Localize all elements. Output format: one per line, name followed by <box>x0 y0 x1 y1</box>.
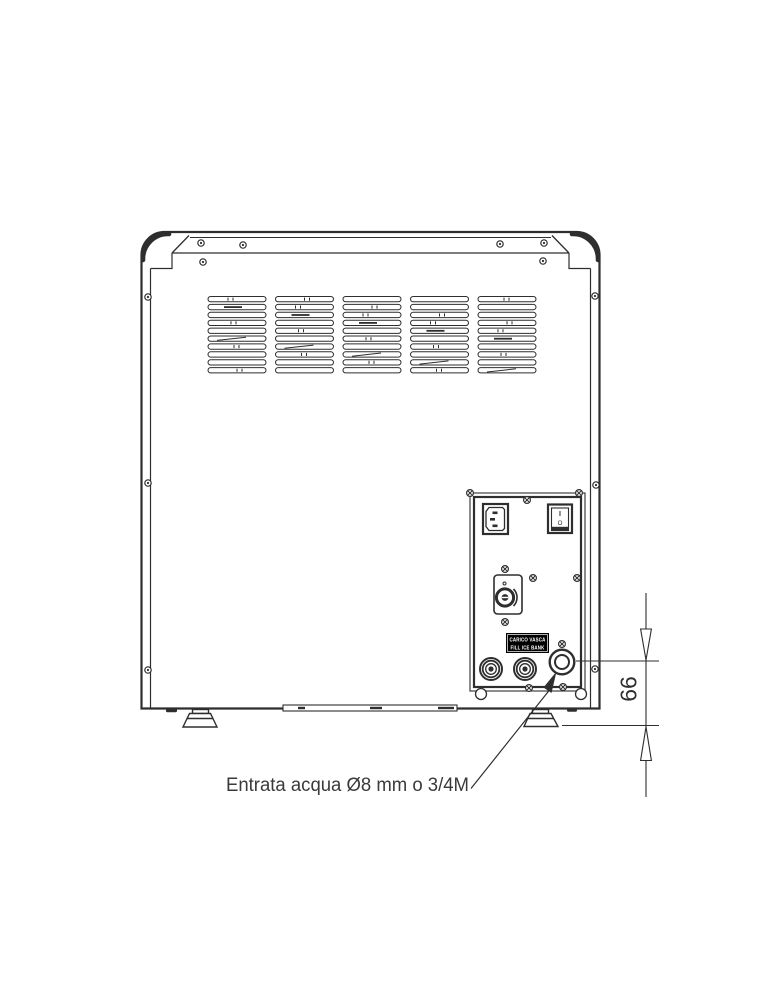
iec-pin <box>493 525 498 528</box>
hose-connector-right <box>514 658 536 680</box>
fill-label-line2: FILL ICE BANK <box>511 646 545 652</box>
iec-pin <box>493 512 498 515</box>
vent-mark <box>292 314 310 316</box>
vent-mark <box>494 338 512 340</box>
vent-mark <box>427 330 445 332</box>
panel-hole-left <box>476 689 487 700</box>
switch-off-mark: O <box>558 520 563 527</box>
switch-rocker-edge <box>552 527 569 531</box>
fill-label: CARICO VASCA FILL ICE BANK <box>506 633 549 653</box>
background <box>0 0 771 1000</box>
water-inlet-fitting <box>550 650 575 675</box>
bottom-nub-right <box>567 708 577 712</box>
screw-icon <box>542 260 544 262</box>
screw-icon <box>543 242 545 244</box>
screw-icon <box>594 668 596 670</box>
panel-hole-right <box>576 689 587 700</box>
vent-mark <box>224 306 242 308</box>
screw-icon <box>594 295 596 297</box>
screw-icon <box>200 242 202 244</box>
screw-icon <box>595 484 597 486</box>
screw-icon <box>202 261 204 263</box>
screw-icon <box>147 669 149 671</box>
iec-pin <box>490 518 495 521</box>
water-inlet-text: Entrata acqua Ø8 mm o 3/4M <box>226 775 469 796</box>
hose-connector-left <box>480 658 502 680</box>
screw-icon <box>147 296 149 298</box>
switch-on-mark: I <box>559 511 561 518</box>
fill-label-line1: CARICO VASCA <box>510 638 546 644</box>
dimension-value: 66 <box>616 676 642 702</box>
strip-mark <box>298 707 305 709</box>
screw-icon <box>499 243 501 245</box>
bottom-nub-left <box>166 708 177 712</box>
strip-mark <box>370 707 382 709</box>
screw-icon <box>242 244 244 246</box>
strip-mark <box>438 707 454 709</box>
foot-left-base <box>183 714 217 728</box>
diagram-canvas: I O CARICO VASCA FILL ICE BANK <box>0 0 771 1000</box>
machine-rear-diagram: I O CARICO VASCA FILL ICE BANK <box>0 0 771 1000</box>
vent-mark <box>359 322 377 324</box>
screw-icon <box>147 482 149 484</box>
